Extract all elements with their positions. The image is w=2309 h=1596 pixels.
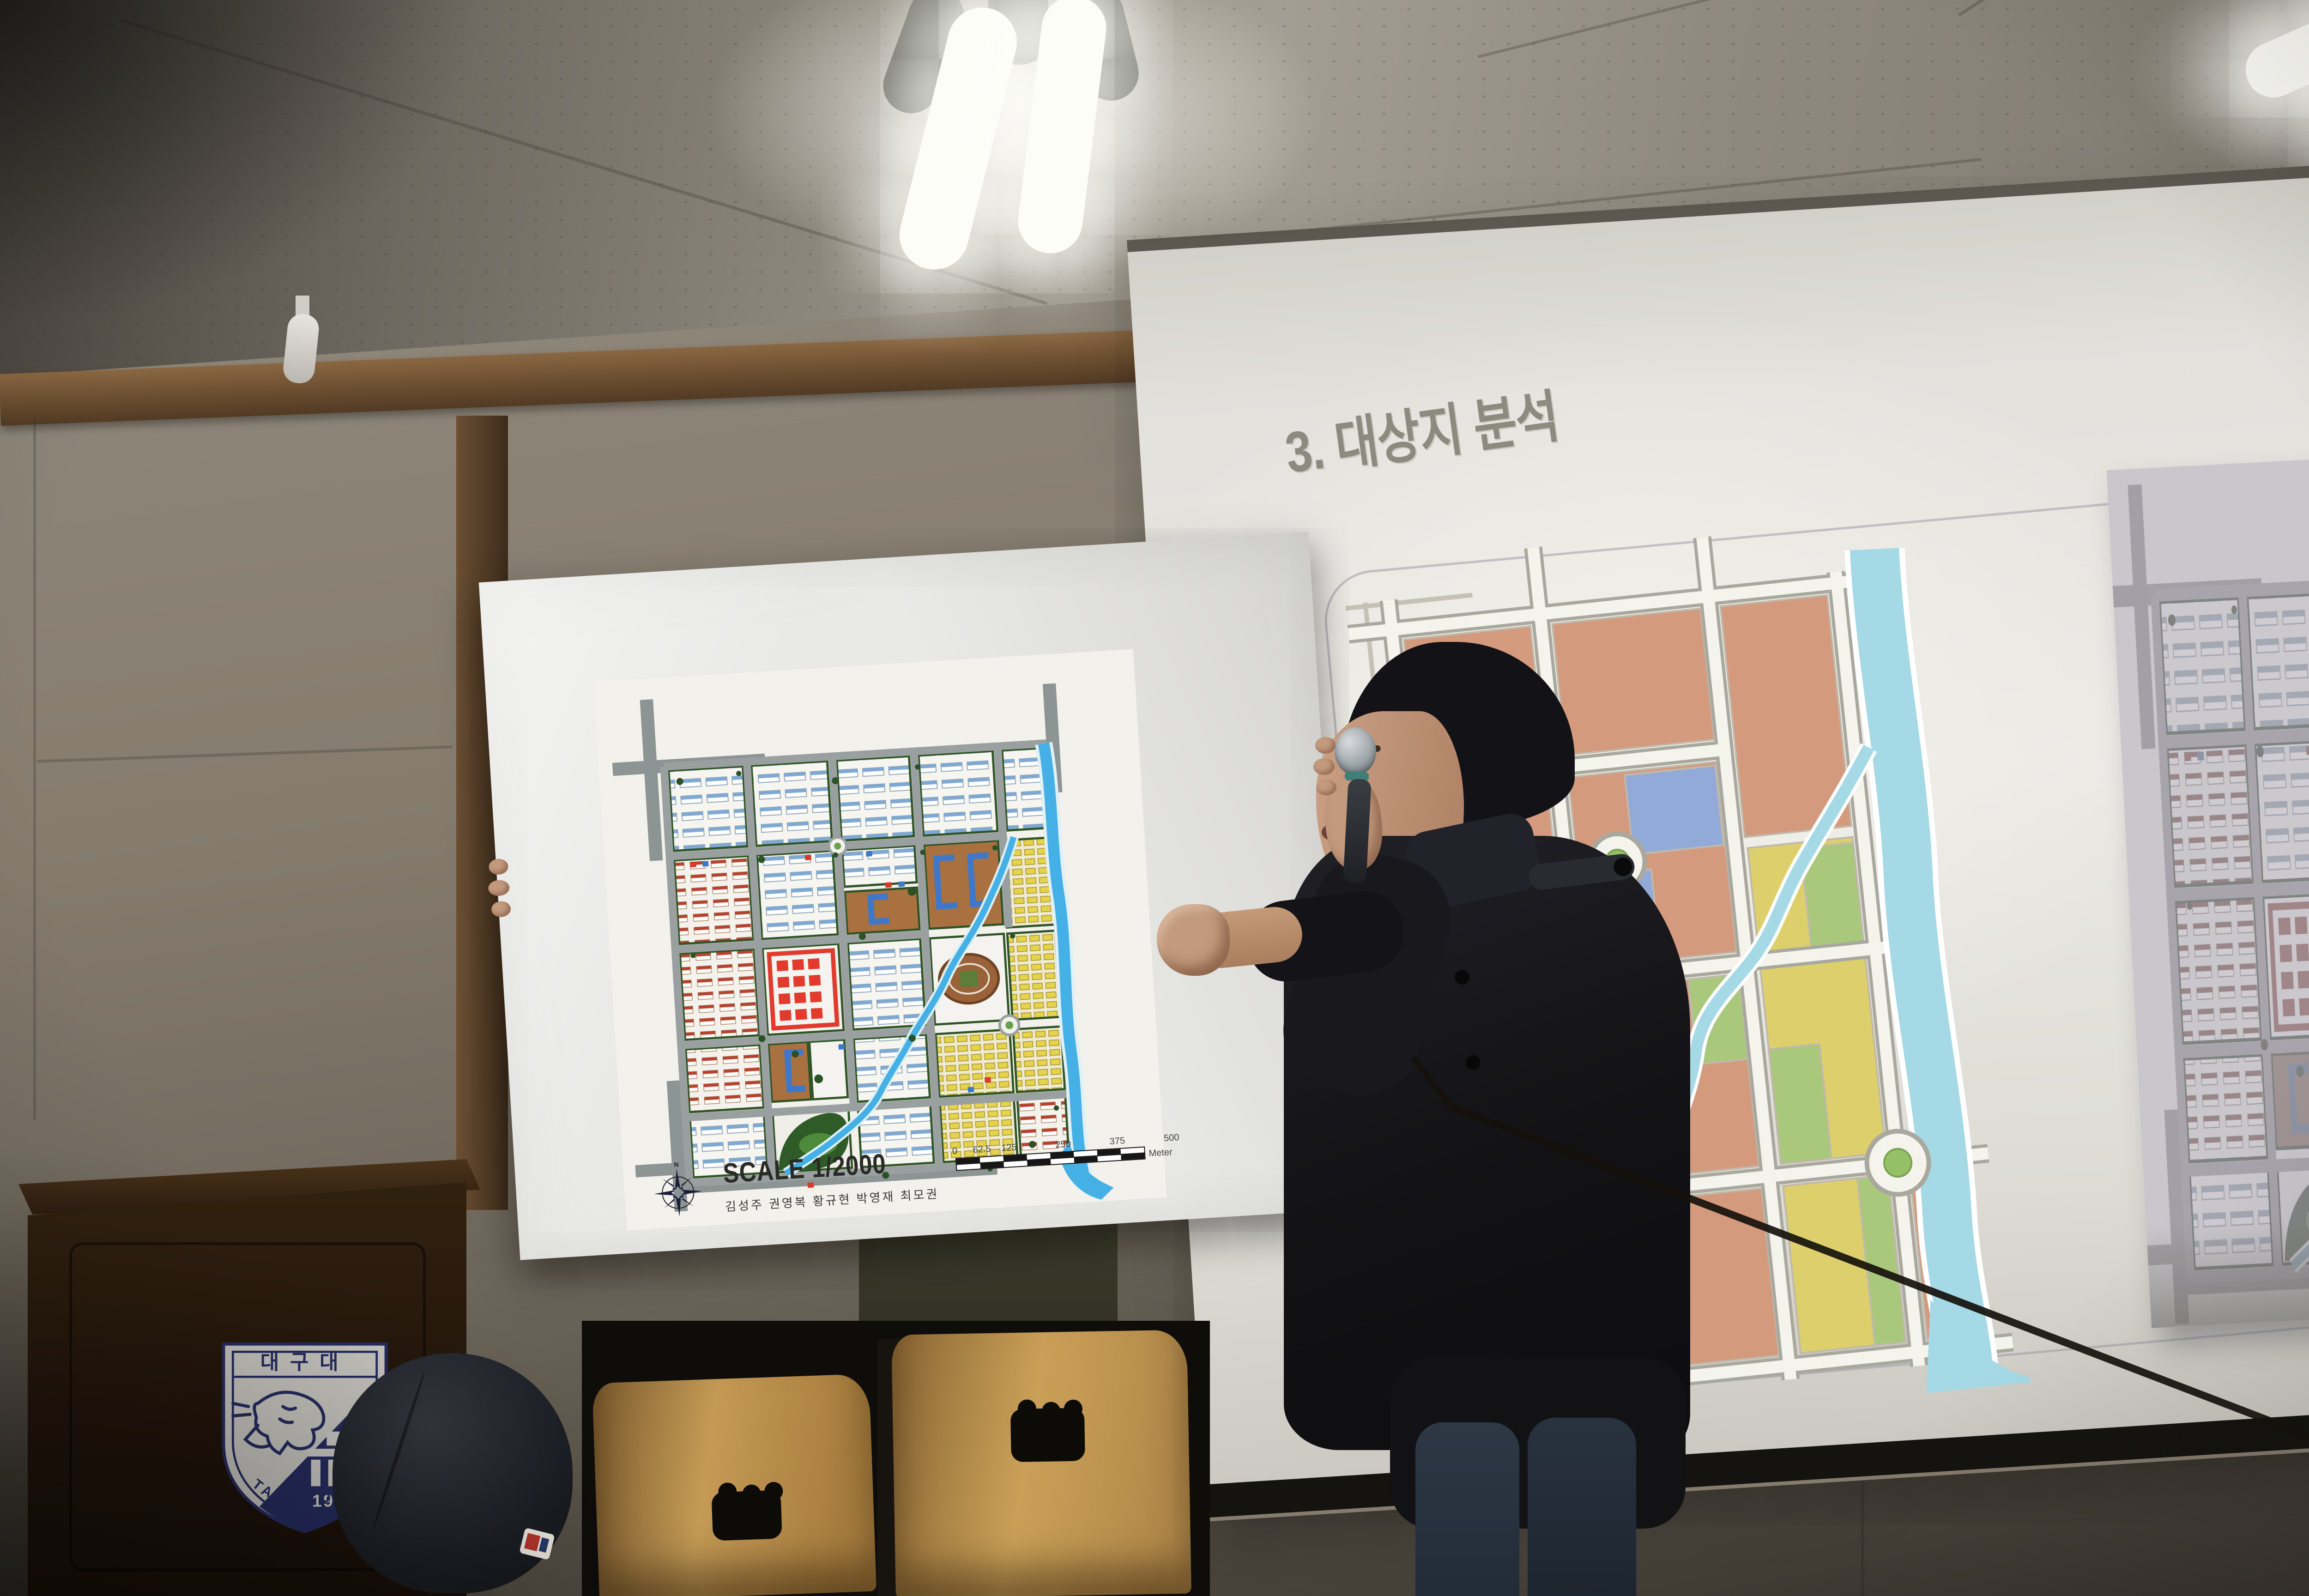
microphone-cable [0,0,2309,1596]
conference-room-photo: 3. 대상지 분석 [0,0,2309,1596]
